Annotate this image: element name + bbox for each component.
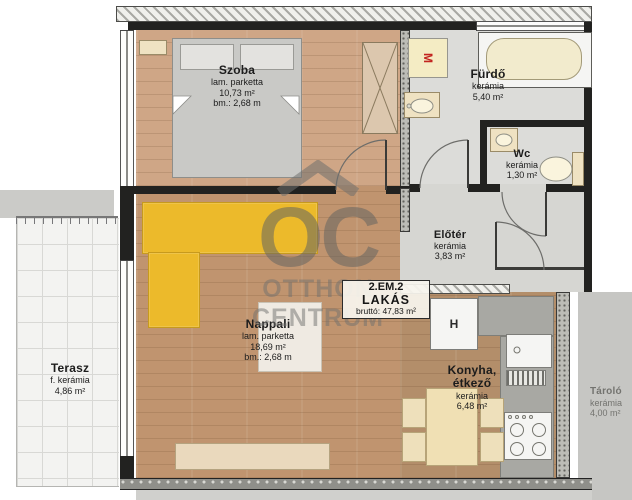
wall-hall-living <box>400 188 410 232</box>
room-material: kerámia <box>506 160 538 170</box>
fridge: H <box>430 298 478 350</box>
wall-wc-vertical <box>480 127 487 184</box>
room-name: Terasz <box>50 362 90 375</box>
wall-wc-horizontal <box>480 120 584 127</box>
wall-kitchen-right <box>556 292 570 478</box>
room-material: lam. parketta <box>211 77 263 87</box>
sofa-chaise <box>148 252 200 328</box>
apartment-gross-area: bruttó: 47,83 m² <box>343 307 429 316</box>
room-material: kerámia <box>590 398 632 408</box>
bathroom-window <box>476 21 586 31</box>
bedroom-window <box>120 30 134 188</box>
wall-bath-hall-b <box>468 184 500 192</box>
room-name: Wc <box>506 148 538 160</box>
kitchen-sink-unit <box>506 334 552 368</box>
wardrobe <box>362 42 398 134</box>
room-area: 18,69 m² <box>242 342 294 352</box>
exterior-strip-bottom <box>136 490 592 500</box>
room-name: Tároló <box>590 386 632 398</box>
sideboard <box>175 443 330 470</box>
room-area: 4,86 m² <box>50 386 90 396</box>
room-name: Fürdő <box>471 68 506 81</box>
chair <box>402 432 426 462</box>
neighbor-area <box>0 190 114 218</box>
room-area: 1,30 m² <box>506 170 538 180</box>
floor-hallway <box>400 184 584 292</box>
washing-machine-label: M <box>421 53 435 63</box>
floor-plan: M H <box>0 0 632 500</box>
wall-left-bottom <box>120 456 134 478</box>
entrance-threshold <box>496 267 584 270</box>
apartment-type: LAKÁS <box>343 294 429 307</box>
sofa <box>142 202 318 254</box>
room-label-tarolo: Tároló kerámia 4,00 m² <box>590 386 632 418</box>
room-label-wc: Wc kerámia 1,30 m² <box>506 148 538 180</box>
room-area: 4,00 m² <box>590 408 632 418</box>
bathroom-sink <box>404 92 440 118</box>
wall-left-mid <box>120 186 134 260</box>
exterior-wall-top-hatch <box>116 6 592 22</box>
room-material: kerámia <box>434 241 466 251</box>
apartment-label: 2.EM.2 LAKÁS bruttó: 47,83 m² <box>342 280 430 319</box>
wall-bath-hall-a <box>410 184 420 192</box>
room-material: lam. parketta <box>242 331 294 341</box>
room-label-nappali: Nappali lam. parketta 18,69 m² bm.: 2,68… <box>242 318 294 362</box>
room-label-konyha: Konyha, étkező kerámia 6,48 m² <box>441 364 503 411</box>
stove <box>504 412 552 460</box>
room-name: Előtér <box>434 229 466 241</box>
room-area: 6,48 m² <box>441 401 503 411</box>
room-name: Nappali <box>242 318 294 331</box>
room-label-szoba: Szoba lam. parketta 10,73 m² bm.: 2,68 m <box>211 64 263 108</box>
dish-drainer <box>506 370 546 386</box>
room-area: 5,40 m² <box>471 92 506 102</box>
chair <box>480 432 504 462</box>
room-height: bm.: 2,68 m <box>211 98 263 108</box>
wall-bottom <box>120 478 592 490</box>
toilet-tank <box>572 152 584 186</box>
room-material: kerámia <box>471 81 506 91</box>
room-label-furdo: Fürdő kerámia 5,40 m² <box>471 68 506 102</box>
floor-terrace <box>16 218 119 487</box>
room-material: kerámia <box>441 391 503 401</box>
room-area: 3,83 m² <box>434 251 466 261</box>
chair <box>402 398 426 428</box>
washing-machine: M <box>408 38 448 78</box>
fridge-label: H <box>450 317 459 331</box>
room-name: Konyha, étkező <box>441 364 503 391</box>
room-name: Szoba <box>211 64 263 77</box>
terrace-door-window <box>120 260 134 458</box>
wall-bedroom-living-left <box>134 186 336 194</box>
room-label-eloter: Előtér kerámia 3,83 m² <box>434 229 466 261</box>
kitchen-counter-top <box>478 296 554 336</box>
room-material: f. kerámia <box>50 375 90 385</box>
terrace-railing <box>16 216 118 224</box>
room-label-terasz: Terasz f. kerámia 4,86 m² <box>50 362 90 396</box>
room-height: bm.: 2,68 m <box>242 352 294 362</box>
room-area: 10,73 m² <box>211 88 263 98</box>
apartment-unit: 2.EM.2 <box>343 282 429 294</box>
nightstand <box>139 40 167 55</box>
